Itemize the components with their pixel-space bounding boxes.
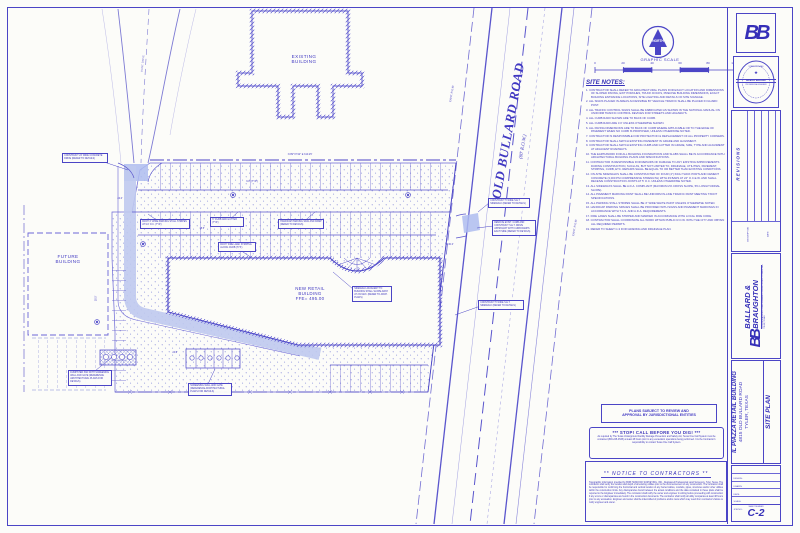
west-drive [102, 9, 196, 163]
project-info-rotated: IL PIAZZA RETAIL BUILDING 4815 OLD BULLA… [732, 364, 762, 460]
firm-logo-small-icon: BB [747, 331, 764, 348]
future-building-label: FUTURE BUILDING [38, 254, 98, 265]
site-note: 9. CONTRACTOR SHALL MATCH EXISTING CURB … [586, 144, 726, 151]
callout: CONSTRUCT 5' WIDE S.E.T. SIDEWALK (REFER… [488, 198, 530, 208]
titleblock-divider [727, 7, 728, 524]
sheet-info-block: DESIGN: DRAWN: DATE: SCALE: JOB NO.: SHE… [731, 465, 781, 522]
field-row: DATE: [732, 482, 780, 490]
seal-state: STATE OF TEXAS [736, 66, 776, 68]
scale-tick-4: 80 [703, 62, 713, 66]
site-notes: SITE NOTES: 1. CONTRACTOR SHALL REFER TO… [586, 79, 726, 233]
site-note: 16. HANDICAP PARKING SPACES SHALL BE PRO… [586, 206, 726, 213]
site-note: 5. ALL CURB RADII ARE 3.0' UNLESS OTHERW… [586, 122, 726, 126]
engineer-seal-box: STATE OF TEXAS ★ BRIAN A. BALLARD PROFES… [733, 56, 779, 108]
scale-tick-1: 20 [618, 62, 628, 66]
callout: SCREENING WALL AND GATE (REFERENCE ARCHI… [188, 383, 232, 396]
field-row: DESIGN: [732, 466, 780, 474]
site-note: 12. ON-SITE SIDEWALKS SHALL BE CONSTRUCT… [586, 173, 726, 184]
seal-engineer-title: PROFESSIONAL ENGINEER [736, 85, 776, 87]
callout: DUMPSTER PAD WITH SCREENING WALL AND GAT… [68, 370, 112, 386]
field-row: SCALE: [732, 489, 780, 497]
firm-logo-icon: BB [745, 22, 768, 45]
approval-notice: PLANS SUBJECT TO REVIEW AND APPROVAL BY … [601, 404, 717, 423]
callout: HANDICAP PARKING SIGN AND RAMP (REFER TO… [278, 219, 324, 229]
sheet-title-rotated: SITE PLAN [765, 364, 777, 460]
callout: REMOVE EXIST. CURB AND CONSTRUCT S.E.T. … [492, 220, 536, 236]
firm-address: TYLER, TEXAS [764, 265, 766, 329]
seal-star-icon: ★ [736, 70, 776, 75]
dimension: R30.0' [440, 244, 460, 247]
revisions-table: REVISIONS DESCRIPTION DATE [731, 110, 781, 252]
firm-block-rotated: BB BALLARD & BRAUGHTON CIVIL ENGINEERING… [733, 257, 777, 355]
project-city: TYLER, TEXAS [745, 364, 751, 460]
callout: PAINT 4" WIDE PARKING STALL STRIPES AT 9… [140, 219, 190, 229]
dimension: 18.5' [192, 228, 212, 231]
callout: 6" CURB AND GUTTER (TYP.) [210, 217, 244, 227]
site-notes-title: SITE NOTES: [586, 79, 726, 86]
scale-tick-0: 0 [590, 62, 600, 66]
site-note: 19. REFER TO SHEET C-3 FOR GRADING AND D… [586, 228, 726, 232]
callout: SIDEWALK ADJACENT TO BUILDING SHALL SLOP… [352, 286, 392, 302]
site-note: 1. CONTRACTOR SHALL REFER TO ARCHITECTUR… [586, 89, 726, 100]
field-row: DRAWN: [732, 474, 780, 482]
project-block: IL PIAZZA RETAIL BUILDING 4815 OLD BULLA… [731, 360, 781, 464]
approval-notice-text: PLANS SUBJECT TO REVIEW AND APPROVAL BY … [602, 405, 716, 417]
dimension: 9.0' (TYP.) [240, 181, 264, 184]
boundary-bearing: N 89°37'42" E 310.25' [260, 154, 340, 157]
dimension: 24.0' [110, 198, 130, 201]
site-note: 14. ALL PAVEMENT MARKING PAINT SHALL BE … [586, 193, 726, 200]
revisions-col-date: DATE [768, 209, 771, 259]
plan-sheet: EXISTING BUILDING FUTURE BUILDING NEW RE… [0, 0, 800, 533]
revisions-col-description: DESCRIPTION [748, 209, 751, 259]
site-note: 6. ALL PAVING DIMENSIONS ARE TO BACK OF … [586, 127, 726, 134]
callout: CONSTRUCT 5' WIDE S.E.T. SIDEWALK (REFER… [478, 300, 524, 310]
firm-block: BB BALLARD & BRAUGHTON CIVIL ENGINEERING… [731, 253, 781, 359]
existing-building-label: EXISTING BUILDING [274, 54, 334, 65]
site-note: 3. ALL TRAFFIC CONTROL SIGNS SHALL BE FA… [586, 109, 726, 116]
firm-name-line2: BRAUGHTON [752, 265, 760, 329]
field-row: JOB NO.: [732, 497, 780, 505]
site-note: 11. CONTRACTOR IS RESPONSIBLE FOR REPAIR… [586, 161, 726, 172]
callout: PAINT 'FIRE LANE' STRIPING ALONG CURB (T… [218, 242, 256, 252]
dimension: 18.5' [96, 288, 99, 308]
notice-to-contractors-body: Topographic information provided by BOB … [586, 480, 726, 506]
graphic-scale-bar [595, 67, 737, 73]
notice-to-contractors-title: ** NOTICE TO CONTRACTORS ** [601, 471, 712, 478]
dimension: 24.0' [165, 352, 185, 355]
north-label: NORTH [641, 40, 675, 44]
seal-engineer-name: BRIAN A. BALLARD [736, 79, 776, 83]
new-building-label: NEW RETAIL BUILDING FFE= 495.00 [275, 286, 345, 302]
firm-logo-box: BB [736, 13, 776, 53]
sheet-title: SITE PLAN [765, 364, 772, 460]
site-note: 18. CONTRACTOR SHALL COORDINATE ALL WORK… [586, 219, 726, 226]
site-note: 2. ALL SIGNS PLACED IN AREAS ACCESSIBLE … [586, 100, 726, 107]
call-before-dig-notice: *** STOP! CALL BEFORE YOU DIG! *** As re… [589, 427, 724, 459]
revisions-title: REVISIONS [735, 119, 740, 209]
callout: CONSTRUCT 24' WIDE CONCRETE DRIVE (REFER… [62, 153, 108, 163]
notice-to-contractors: ** NOTICE TO CONTRACTORS ** Topographic … [585, 461, 727, 522]
site-note: 10. THE EARTHWORK FOR ALL BUILDING FOUND… [586, 153, 726, 160]
scale-tick-2: 40 [647, 62, 657, 66]
scale-tick-3: 60 [675, 62, 685, 66]
site-note: 13. ALL SIDEWALKS SHALL BE A.D.A. COMPLI… [586, 185, 726, 192]
field-label: JOB NO.: [732, 509, 743, 511]
call-before-dig-body: As required by The Texas Underground Fac… [590, 435, 723, 446]
